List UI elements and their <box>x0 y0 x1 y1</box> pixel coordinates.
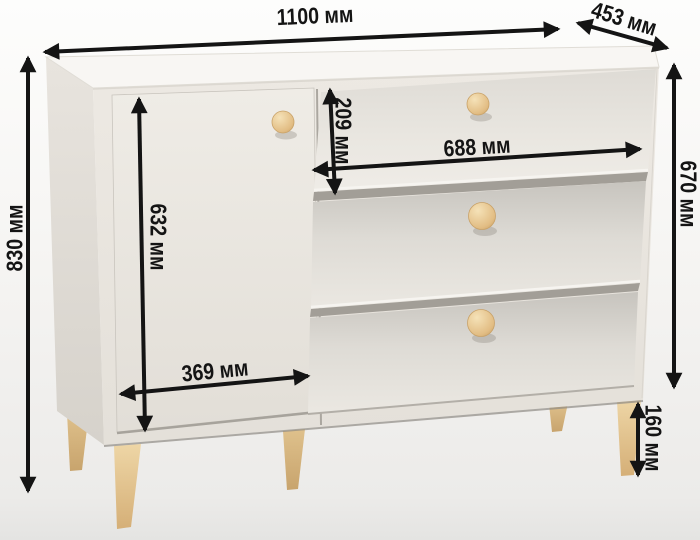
body-height-label: 670 мм <box>677 161 700 228</box>
furniture-illustration <box>0 0 700 540</box>
leg-front-left <box>114 444 141 529</box>
overall-width-label: 1100 мм <box>276 3 354 29</box>
overall-width-arrow <box>45 29 558 52</box>
diagram-canvas: 1100 мм 453 мм 830 мм 670 мм 632 мм 209 … <box>0 0 700 540</box>
leg-height-label: 160 мм <box>642 405 665 472</box>
drawer-1-knob <box>467 93 489 115</box>
door-height-label: 632 мм <box>147 204 170 271</box>
leg-middle <box>283 429 305 490</box>
drawer-3-knob <box>468 310 495 337</box>
door-knob <box>272 111 294 133</box>
overall-height-label: 830 мм <box>4 205 27 272</box>
top-drawer-height-label: 209 мм <box>332 98 355 165</box>
drawer-width-label: 688 мм <box>443 133 511 160</box>
drawer-2-knob <box>469 203 496 230</box>
